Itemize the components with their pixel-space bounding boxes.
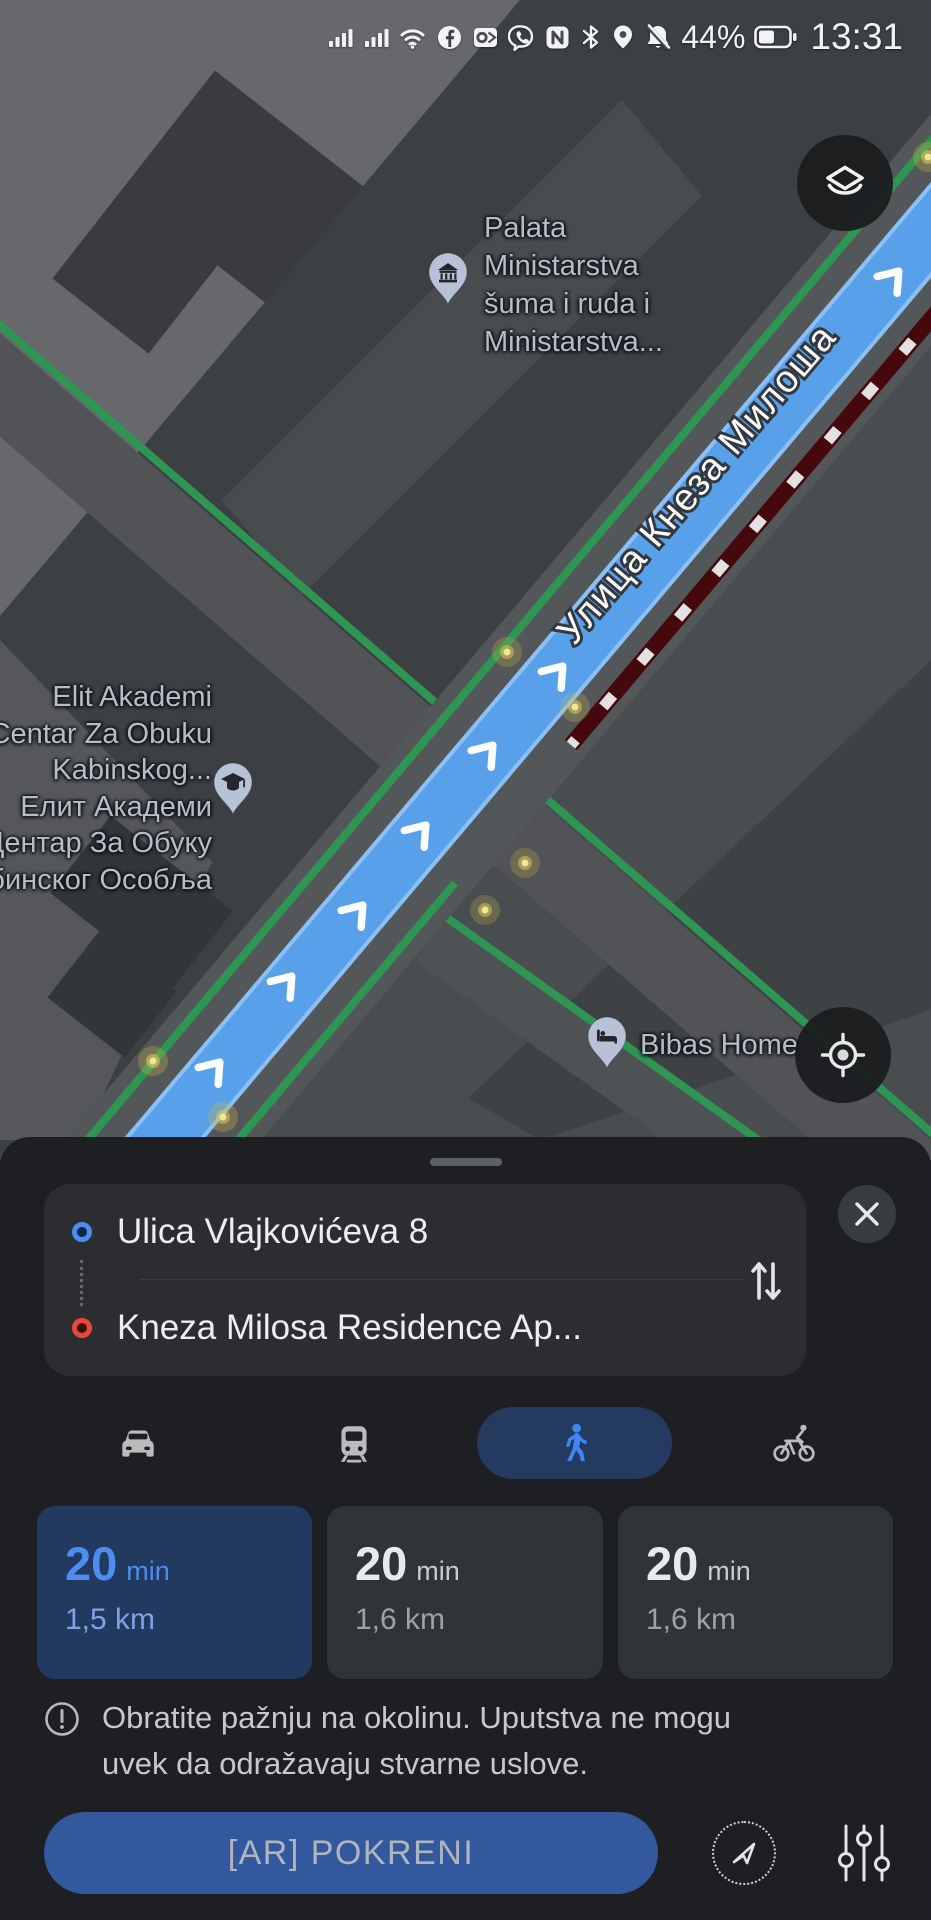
- status-bar: 44% 13:31: [0, 0, 931, 74]
- viber-icon: [508, 24, 535, 51]
- safety-warning: Obratite pažnju na okolinu. Uputstva ne …: [42, 1695, 890, 1787]
- poi-line: Elit Akademi: [0, 679, 212, 716]
- route-bottom-sheet: Ulica Vlajkovićeva 8 Kneza Milosa Reside…: [0, 1137, 931, 1920]
- wifi-icon: [399, 24, 427, 51]
- bike-icon: [771, 1420, 817, 1466]
- swap-endpoints-button[interactable]: [744, 1256, 788, 1311]
- notifications-muted-icon: [644, 23, 672, 51]
- close-button[interactable]: [838, 1185, 896, 1243]
- battery-percent: 44%: [681, 19, 745, 56]
- navigation-arrow-icon: [727, 1836, 761, 1870]
- distance-value: 1,6 km: [646, 1603, 893, 1637]
- location-icon: [611, 23, 635, 51]
- poi-line: Bibas Home: [640, 1026, 798, 1064]
- petal-maps-screen: Улица Кнеза Милоша Palata Ministarstva š…: [0, 0, 931, 1920]
- signal-bars-icon: [363, 24, 390, 51]
- route-option-2[interactable]: 20 min 1,6 km: [327, 1506, 603, 1679]
- ar-start-label: [AR] POKRENI: [228, 1834, 475, 1873]
- duration-value: 20: [646, 1536, 698, 1591]
- walk-icon: [551, 1419, 599, 1467]
- outlook-icon: [472, 24, 499, 51]
- poi-label-palata[interactable]: Palata Ministarstva šuma i ruda i Minist…: [484, 209, 663, 361]
- poi-line: Palata: [484, 209, 663, 247]
- battery-icon: [754, 25, 797, 49]
- route-option-3[interactable]: 20 min 1,6 km: [618, 1506, 893, 1679]
- status-time: 13:31: [810, 16, 903, 58]
- start-navigation-button[interactable]: [712, 1821, 776, 1885]
- duration-unit: min: [707, 1556, 751, 1587]
- destination-dot-icon: [72, 1318, 92, 1338]
- layers-icon: [821, 159, 869, 207]
- bluetooth-icon: [580, 23, 602, 51]
- warning-line: uvek da odražavaju stvarne uslove.: [102, 1741, 731, 1787]
- route-endpoints-card: Ulica Vlajkovićeva 8 Kneza Milosa Reside…: [44, 1184, 806, 1376]
- swap-icon: [744, 1256, 788, 1306]
- poi-line: Елит Академи: [0, 789, 212, 826]
- poi-line: Ministarstva...: [484, 323, 663, 361]
- origin-dot-icon: [72, 1222, 92, 1242]
- locate-icon: [819, 1031, 867, 1079]
- distance-value: 1,6 km: [355, 1603, 603, 1637]
- poi-line: Centar Za Obuku: [0, 716, 212, 753]
- info-icon: [42, 1699, 82, 1739]
- duration-unit: min: [416, 1556, 460, 1587]
- poi-line: Кабинског Особља: [0, 862, 212, 899]
- origin-value: Ulica Vlajkovićeva 8: [117, 1212, 428, 1252]
- tab-mode-walk-selected[interactable]: [477, 1407, 672, 1479]
- tab-mode-transit[interactable]: [294, 1407, 414, 1479]
- poi-label-elit[interactable]: Elit Akademi Centar Za Obuku Kabinskog..…: [0, 679, 212, 898]
- origin-field[interactable]: Ulica Vlajkovićeva 8: [44, 1197, 806, 1267]
- signal-bars-icon: [327, 24, 354, 51]
- nfc-icon: [544, 24, 571, 51]
- distance-value: 1,5 km: [65, 1603, 312, 1637]
- transport-mode-tabs: [0, 1407, 931, 1479]
- route-option-1[interactable]: 20 min 1,5 km: [37, 1506, 312, 1679]
- close-icon: [845, 1192, 889, 1236]
- tab-mode-car[interactable]: [78, 1407, 198, 1479]
- destination-value: Kneza Milosa Residence Ap...: [117, 1308, 582, 1348]
- map-canvas[interactable]: Улица Кнеза Милоша: [0, 0, 931, 1160]
- poi-line: Ministarstva: [484, 247, 663, 285]
- duration-value: 20: [355, 1536, 407, 1591]
- duration-unit: min: [126, 1556, 170, 1587]
- sheet-drag-handle[interactable]: [430, 1158, 502, 1166]
- warning-line: Obratite pažnju na okolinu. Uputstva ne …: [102, 1695, 731, 1741]
- tab-mode-bike[interactable]: [734, 1407, 854, 1479]
- route-settings-button[interactable]: [832, 1821, 896, 1885]
- divider: [140, 1279, 744, 1280]
- duration-value: 20: [65, 1536, 117, 1591]
- car-icon: [115, 1420, 161, 1466]
- poi-line: šuma i ruda i: [484, 285, 663, 323]
- poi-line: Центар За Обуку: [0, 825, 212, 862]
- poi-line: Kabinskog...: [0, 752, 212, 789]
- facebook-icon: [436, 24, 463, 51]
- poi-label-bibas[interactable]: Bibas Home: [640, 1026, 798, 1064]
- layers-button[interactable]: [797, 135, 893, 231]
- ar-start-button[interactable]: [AR] POKRENI: [44, 1812, 658, 1894]
- sliders-icon: [834, 1822, 894, 1884]
- locate-button[interactable]: [795, 1007, 891, 1103]
- destination-field[interactable]: Kneza Milosa Residence Ap...: [44, 1293, 806, 1363]
- train-icon: [331, 1420, 377, 1466]
